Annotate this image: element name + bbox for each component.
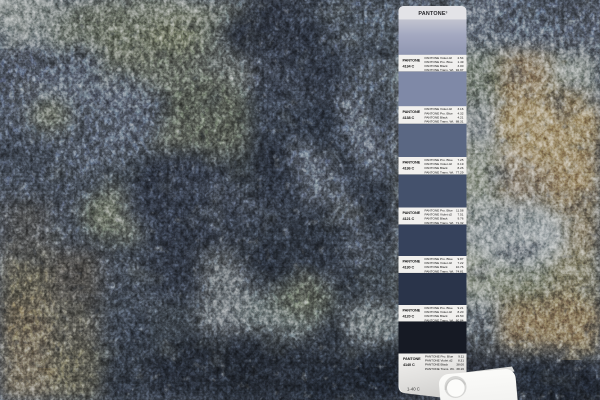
svg-text:1-40 C: 1-40 C [407,387,420,392]
svg-text:PANTONE: PANTONE [403,309,421,313]
svg-text:PANTONE Trans. Wt.: PANTONE Trans. Wt. [425,120,455,124]
svg-text:PANTONE: PANTONE [403,357,421,361]
svg-text:PANTONE®: PANTONE® [418,11,447,17]
svg-text:PANTONE: PANTONE [403,260,421,264]
svg-text:PANTONE Trans. Wt.: PANTONE Trans. Wt. [425,367,455,371]
svg-text:PANTONE Trans. Wt.: PANTONE Trans. Wt. [425,170,455,174]
svg-text:PANTONE: PANTONE [403,58,421,62]
svg-text:PANTONE: PANTONE [403,110,421,114]
svg-text:4120 C: 4120 C [403,315,415,319]
svg-text:4134 C: 4134 C [403,65,415,69]
svg-text:4130 C: 4130 C [403,266,415,270]
svg-text:4140 C: 4140 C [403,363,415,367]
svg-text:PANTONE: PANTONE [403,161,421,165]
svg-text:38.16: 38.16 [456,367,464,371]
svg-text:4121 C: 4121 C [403,217,415,221]
svg-text:4136 C: 4136 C [403,167,415,171]
svg-text:4138 C: 4138 C [403,116,415,120]
svg-text:PANTONE: PANTONE [403,211,421,215]
svg-text:77.29: 77.29 [456,170,464,174]
svg-text:88.31: 88.31 [456,120,464,124]
